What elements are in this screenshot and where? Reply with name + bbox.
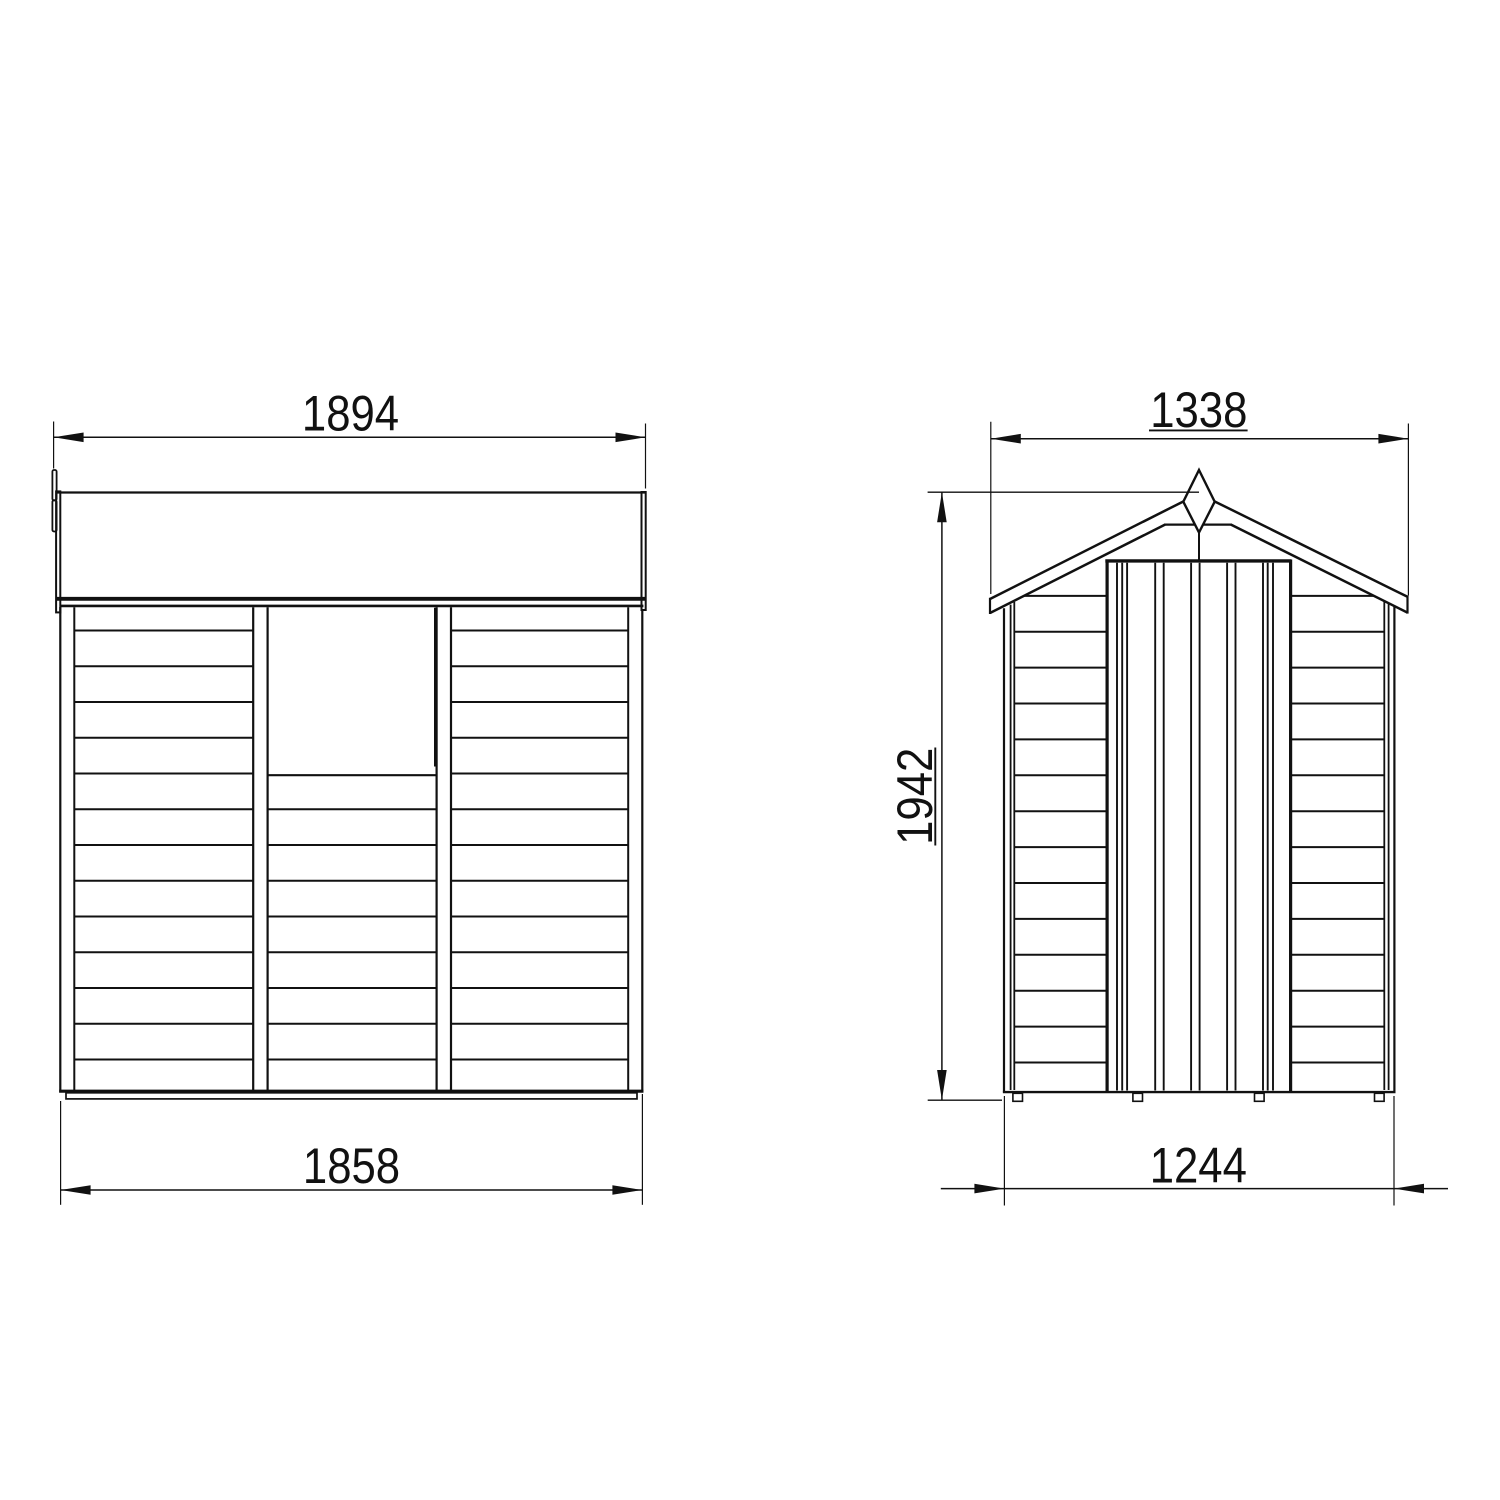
svg-text:1894: 1894	[302, 385, 399, 441]
svg-text:1858: 1858	[303, 1137, 400, 1193]
svg-text:1338: 1338	[1150, 381, 1247, 437]
svg-text:1244: 1244	[1150, 1137, 1247, 1193]
svg-text:1942: 1942	[886, 748, 942, 845]
